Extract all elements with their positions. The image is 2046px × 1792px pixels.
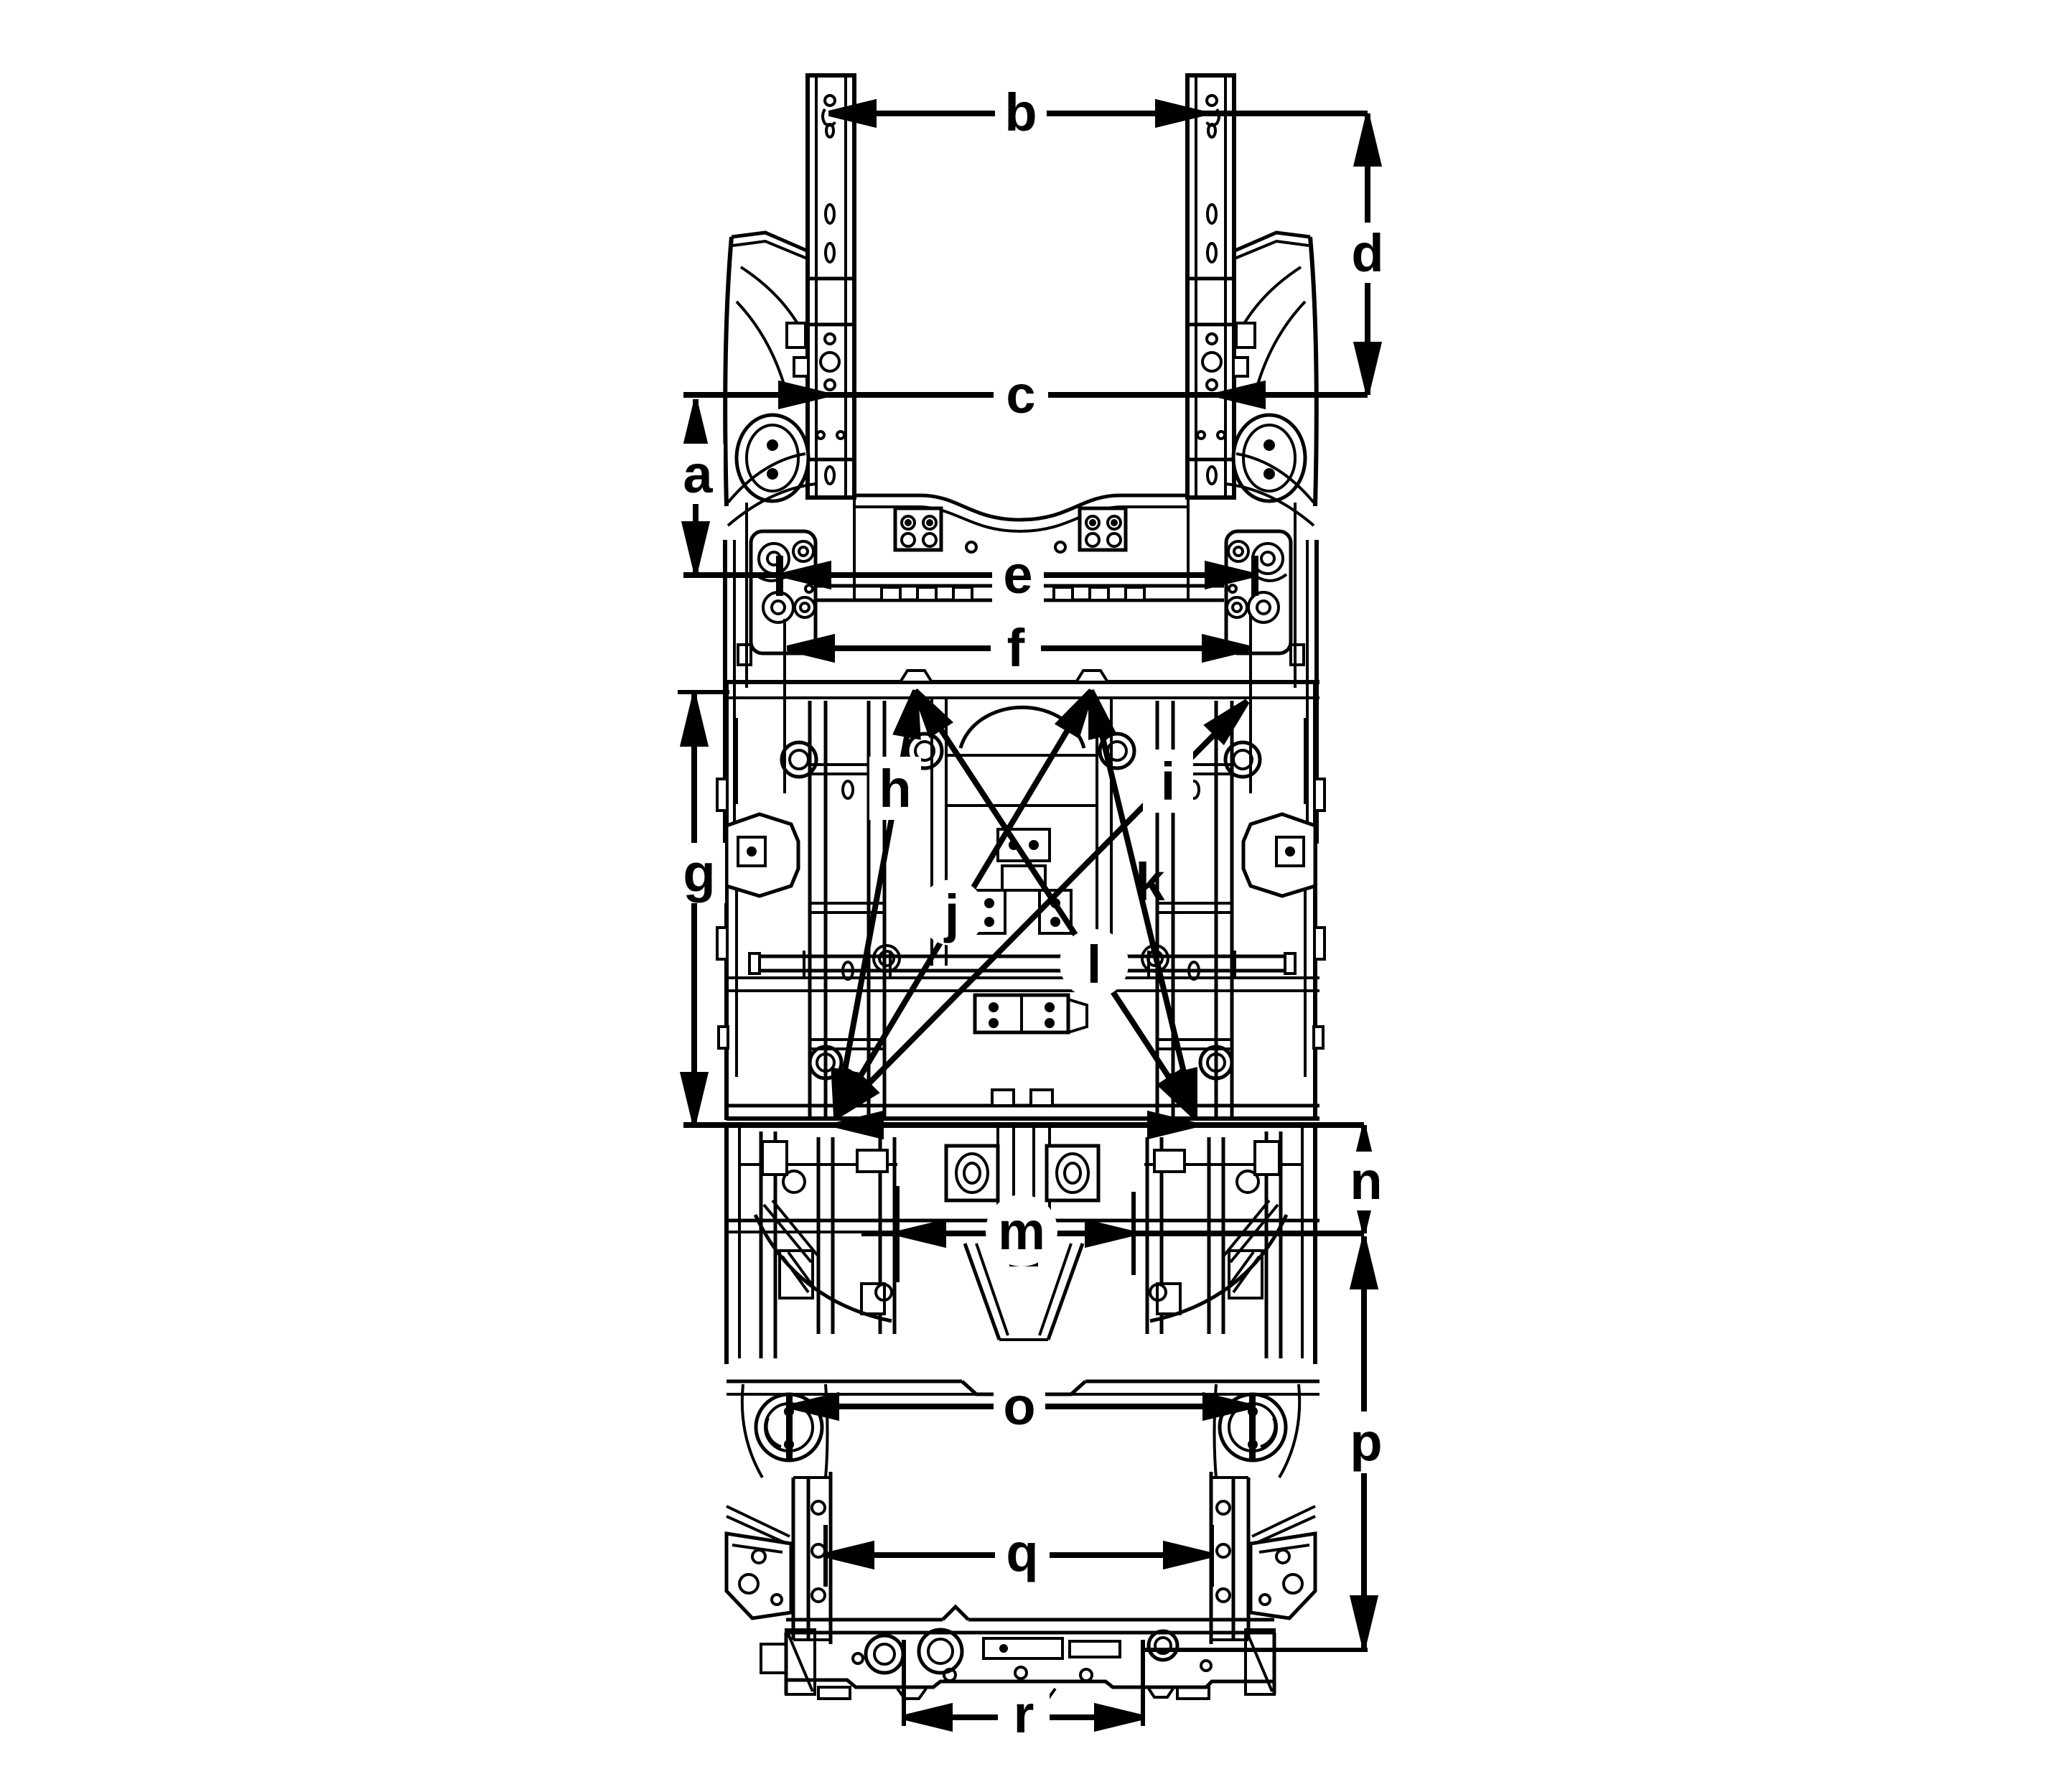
dimension-label-d: d (1351, 223, 1383, 283)
dimension-label-i: i (1161, 752, 1176, 811)
dimension-label-a: a (683, 444, 713, 504)
dimension-label-l: l (1087, 935, 1102, 994)
underbody-dimension-diagram: a b c d e f g h i j k l m n o p q r (0, 0, 2046, 1792)
dimension-label-j: j (943, 884, 960, 943)
dimension-label-f: f (1007, 618, 1025, 678)
body-structure (717, 75, 1325, 1699)
dimension-label-h: h (879, 759, 911, 818)
dimension-label-k: k (1135, 852, 1165, 912)
dimension-label-n: n (1350, 1151, 1382, 1210)
dimension-m (861, 1186, 1364, 1282)
dimension-b (829, 103, 1368, 124)
dimension-label-p: p (1350, 1412, 1382, 1472)
dimension-label-m: m (998, 1201, 1045, 1261)
dimension-label-q: q (1006, 1523, 1038, 1582)
diagram-canvas: a b c d e f g h i j k l m n o p q r (0, 0, 2046, 1792)
dimension-label-r: r (1014, 1684, 1034, 1744)
dimension-g (678, 692, 729, 1125)
dimension-label-b: b (1004, 83, 1037, 142)
dimension-label-o: o (1003, 1376, 1035, 1436)
dimension-label-e: e (1003, 545, 1032, 605)
dimension-label-c: c (1006, 365, 1035, 424)
dimension-label-g: g (683, 844, 715, 903)
